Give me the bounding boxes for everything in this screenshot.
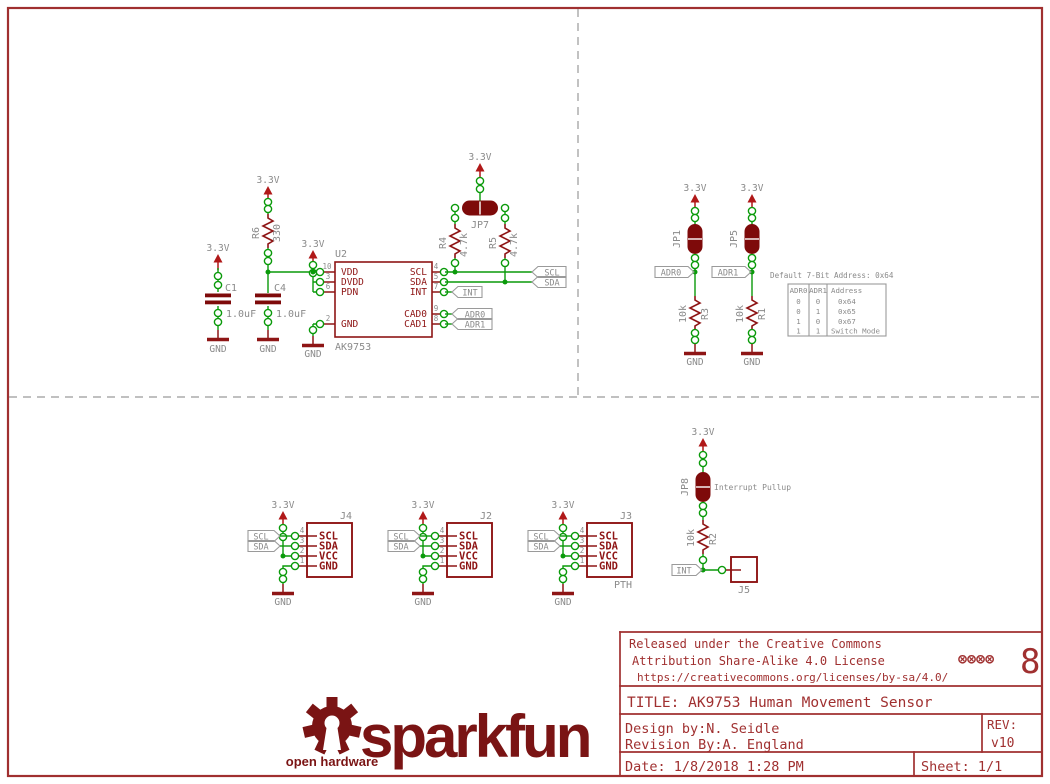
u2-pin-pdn: PDN xyxy=(341,287,358,298)
tbl-h1: ADR1 xyxy=(809,286,827,295)
j4-pin2-num: 2 xyxy=(300,546,305,555)
r6-refdes: R6 xyxy=(251,227,262,239)
license-url: https://creativecommons.org/licenses/by-… xyxy=(637,671,948,684)
design-by: Design by:N. Seidle xyxy=(625,721,779,737)
adr1-label-jp5: ADR1 xyxy=(718,269,738,279)
j4-pin3-num: 3 xyxy=(300,536,305,545)
connector-j4: 3.3V SCL SDA 4 3 2 1 SCL SDA VCC GND J4 … xyxy=(248,500,352,608)
j3-pin4-num: 4 xyxy=(580,526,585,535)
title-block: Released under the Creative Commons Attr… xyxy=(620,632,1041,775)
tbl-r3c2: Switch Mode xyxy=(831,327,880,336)
j4-pin1-num: 1 xyxy=(300,556,305,565)
license-line1: Released under the Creative Commons xyxy=(629,637,882,651)
u2-value: AK9753 xyxy=(335,342,371,353)
j3-sda-net: SDA xyxy=(533,543,548,553)
tbl-r1c0: 0 xyxy=(796,307,800,316)
int-net-text: INT xyxy=(462,289,477,299)
sparkfun-wordmark: sparkfun xyxy=(360,703,589,770)
j2-supply-label: 3.3V xyxy=(412,500,435,511)
rev-label: REV: xyxy=(987,717,1017,732)
jp7-supply-label: 3.3V xyxy=(469,152,492,163)
r2-value: 10k xyxy=(686,529,697,547)
c1-gnd-label: GND xyxy=(209,344,226,355)
rev-value: v10 xyxy=(991,736,1014,751)
u2-gnd-label: GND xyxy=(304,349,321,360)
jp5-refdes: JP5 xyxy=(729,230,740,248)
r5-value: 4.7k xyxy=(509,233,520,257)
jp1-gnd-label: GND xyxy=(686,357,703,368)
jp7-refdes: JP7 xyxy=(471,220,489,231)
j2-sda-net: SDA xyxy=(393,543,408,553)
j2-pin4-num: 4 xyxy=(440,526,445,535)
j2-gnd-label: GND xyxy=(414,597,431,608)
adr1-net-text: ADR1 xyxy=(465,321,485,331)
cc-marks-icon: ⊗⊗⊗⊗ xyxy=(958,650,994,668)
tbl-r2c0: 1 xyxy=(796,317,800,326)
sheet-number: Sheet: 1/1 xyxy=(921,759,1002,775)
jp5-gnd-label: GND xyxy=(743,357,760,368)
u2-refdes: U2 xyxy=(335,249,347,260)
tbl-r1c2: 0x65 xyxy=(838,307,856,316)
u2-pin3-num: 3 xyxy=(326,272,331,281)
jp8-supply-label: 3.3V xyxy=(692,427,715,438)
tbl-r3c1: 1 xyxy=(816,327,820,336)
r4-value: 4.7k xyxy=(459,233,470,257)
j2-pin1-num: 1 xyxy=(440,556,445,565)
j3-supply-label: 3.3V xyxy=(552,500,575,511)
tbl-r0c2: 0x64 xyxy=(838,297,856,306)
address-table: Default 7-Bit Address: 0x64 ADR0 ADR1 Ad… xyxy=(770,271,894,336)
net-wires-u2 xyxy=(445,270,532,325)
ic-u2-ak9753: 3.3V 10 3 6 2 GND U2 AK9753 VDD DVDD PDN… xyxy=(302,239,448,360)
r3-refdes: R3 xyxy=(700,308,711,320)
page-border xyxy=(8,8,1042,776)
capacitor-c1: 3.3V C1 1.0uF GND xyxy=(205,243,256,355)
j2-pin2-num: 2 xyxy=(440,546,445,555)
oshw-gear-icon xyxy=(303,697,362,755)
sheet-title: TITLE: AK9753 Human Movement Sensor xyxy=(627,695,933,711)
u2-pin4-num: 4 xyxy=(434,262,439,271)
c4-refdes: C4 xyxy=(274,283,286,294)
rc-filter-r6-c4: 3.3V R6 330 C4 1.0uF GND xyxy=(251,175,313,355)
jp8-refdes: JP8 xyxy=(680,478,691,496)
r1-refdes: R1 xyxy=(757,308,768,320)
u2-pin8-num: 8 xyxy=(434,314,439,323)
j3-pin2-num: 2 xyxy=(580,546,585,555)
c4-gnd-label: GND xyxy=(259,344,276,355)
net-label-sda-right: SDA xyxy=(532,277,566,289)
j4-pin4-num: 4 xyxy=(300,526,305,535)
tbl-r1c1: 1 xyxy=(816,307,820,316)
j4-gnd-label: GND xyxy=(274,597,291,608)
jp8-note: Interrupt Pullup xyxy=(714,483,791,492)
tbl-r0c0: 0 xyxy=(796,297,800,306)
j2-refdes: J2 xyxy=(480,511,492,522)
c1-value: 1.0uF xyxy=(226,309,256,320)
j2-pin3-num: 3 xyxy=(440,536,445,545)
connector-j3: 3.3V SCL SDA 4 3 2 1 SCL SDA VCC GND J3 … xyxy=(528,500,632,608)
c1-supply-label: 3.3V xyxy=(207,243,230,254)
net-label-adr1-u2: ADR1 xyxy=(452,319,492,331)
j5-refdes: J5 xyxy=(738,585,750,596)
j3-pin1-num: 1 xyxy=(580,556,585,565)
interrupt-pullup-jp8: 3.3V JP8 Interrupt Pullup 10k R2 INT J5 xyxy=(672,427,791,596)
sda-net-text: SDA xyxy=(544,279,559,289)
tbl-h0: ADR0 xyxy=(790,286,808,295)
tbl-r2c1: 0 xyxy=(816,317,820,326)
jp1-supply-label: 3.3V xyxy=(684,183,707,194)
c4-value: 1.0uF xyxy=(276,309,306,320)
r1-value: 10k xyxy=(735,305,746,323)
u2-pin-cad1: CAD1 xyxy=(404,319,427,330)
tbl-h2: Address xyxy=(831,286,862,295)
u2-pin7-num: 7 xyxy=(434,282,439,291)
r6-supply-label: 3.3V xyxy=(257,175,280,186)
j3-pin-gnd: GND xyxy=(599,561,618,573)
license-line2: Attribution Share-Alike 4.0 License xyxy=(632,654,885,668)
u2-pin2-num: 2 xyxy=(326,314,331,323)
schematic-page: 3.3V C1 1.0uF GND 3.3V R6 330 C4 1.0uF G… xyxy=(0,0,1050,784)
u2-pin9-num: 9 xyxy=(434,304,439,313)
r3-value: 10k xyxy=(678,305,689,323)
u2-pin10-num: 10 xyxy=(322,262,332,271)
adr0-label-jp1: ADR0 xyxy=(661,269,681,279)
u2-pin6-num: 6 xyxy=(326,282,331,291)
address-jumper-jp5-r1: 3.3V JP5 ADR1 10k R1 GND xyxy=(712,183,768,368)
tbl-r2c2: 0x67 xyxy=(838,317,856,326)
r2-refdes: R2 xyxy=(708,533,719,545)
net-label-int-u2: INT xyxy=(452,287,482,299)
address-jumper-jp1-r3: 3.3V JP1 ADR0 10k R3 GND xyxy=(655,183,711,368)
j3-note: PTH xyxy=(614,580,632,591)
tbl-r0c1: 0 xyxy=(816,297,820,306)
j3-pin3-num: 3 xyxy=(580,536,585,545)
j2-pin-gnd: GND xyxy=(459,561,478,573)
schematic-svg: 3.3V C1 1.0uF GND 3.3V R6 330 C4 1.0uF G… xyxy=(0,0,1050,784)
revision-by: Revision By:A. England xyxy=(625,737,804,753)
jp1-refdes: JP1 xyxy=(672,230,683,248)
u2-pin-gnd: GND xyxy=(341,319,358,330)
tbl-r3c0: 1 xyxy=(796,327,800,336)
int-label-j5: INT xyxy=(676,567,691,577)
i2c-pullups-jp7: 3.3V JP7 R4 4.7k R5 4.7k xyxy=(438,152,520,282)
date-text: Date: 1/8/2018 1:28 PM xyxy=(625,759,804,775)
jp5-supply-label: 3.3V xyxy=(741,183,764,194)
u2-pin-int: INT xyxy=(410,287,427,298)
r4-refdes: R4 xyxy=(438,237,449,249)
j4-sda-net: SDA xyxy=(253,543,268,553)
c1-refdes: C1 xyxy=(225,283,237,294)
j4-pin-gnd: GND xyxy=(319,561,338,573)
r5-refdes: R5 xyxy=(488,237,499,249)
address-note: Default 7-Bit Address: 0x64 xyxy=(770,271,894,280)
j4-supply-label: 3.3V xyxy=(272,500,295,511)
j3-refdes: J3 xyxy=(620,511,632,522)
j3-gnd-label: GND xyxy=(554,597,571,608)
oshw-mark-icon: 8 xyxy=(1020,642,1040,682)
connector-j2: 3.3V SCL SDA 4 3 2 1 SCL SDA VCC GND J2 … xyxy=(388,500,492,608)
u2-supply-label: 3.3V xyxy=(302,239,325,250)
u2-pin5-num: 5 xyxy=(434,272,439,281)
r6-value: 330 xyxy=(272,224,283,242)
j4-refdes: J4 xyxy=(340,511,352,522)
